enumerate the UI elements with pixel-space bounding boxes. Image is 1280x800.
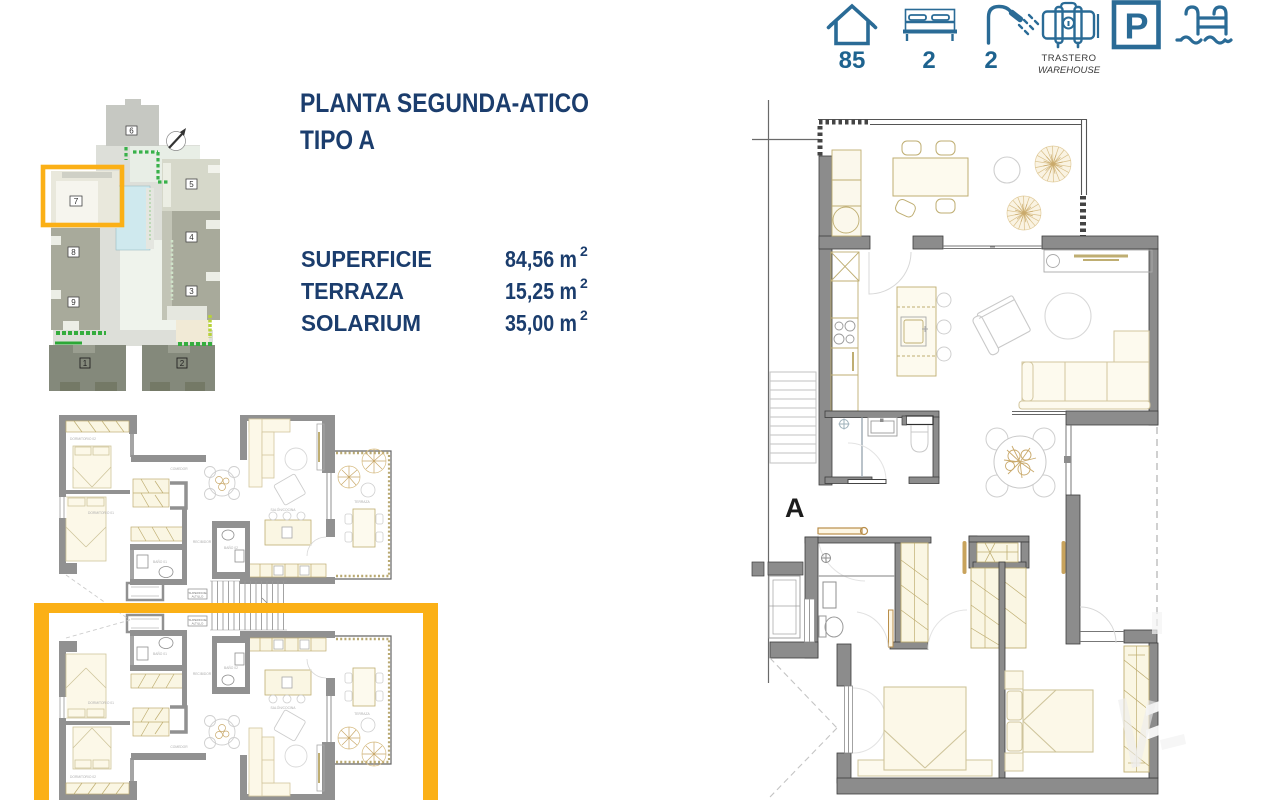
svg-text:2: 2	[580, 307, 588, 323]
svg-text:TRASTERO: TRASTERO	[1042, 53, 1097, 64]
svg-text:2: 2	[922, 47, 935, 74]
svg-text:PLANTA SEGUNDA-ATICO: PLANTA SEGUNDA-ATICO	[300, 88, 589, 118]
svg-text:5: 5	[189, 180, 194, 189]
svg-text:7: 7	[74, 196, 79, 206]
svg-text:DORMITORIO 02: DORMITORIO 02	[70, 775, 96, 779]
svg-text:ALTILLO: ALTILLO	[192, 595, 204, 599]
svg-text:RECIBIDOR: RECIBIDOR	[193, 672, 212, 676]
svg-text:DORMITORIO 01: DORMITORIO 01	[88, 511, 114, 515]
svg-text:BAÑO 02: BAÑO 02	[224, 665, 238, 670]
svg-text:SALÓN/COCINA: SALÓN/COCINA	[271, 507, 297, 512]
svg-text:BAÑO 01: BAÑO 01	[153, 651, 167, 656]
svg-text:P: P	[1124, 6, 1148, 47]
svg-text:2: 2	[580, 275, 588, 291]
svg-text:COMEDOR: COMEDOR	[170, 745, 188, 749]
svg-text:TERRAZA: TERRAZA	[354, 712, 370, 716]
svg-text:WAREHOUSE: WAREHOUSE	[1038, 65, 1101, 76]
svg-text:35,00 m: 35,00 m	[505, 310, 577, 336]
svg-text:BAÑO 02: BAÑO 02	[224, 545, 238, 550]
svg-text:8: 8	[71, 248, 76, 257]
svg-text:TERRAZA: TERRAZA	[354, 500, 370, 504]
svg-text:DORMITORIO 01: DORMITORIO 01	[88, 701, 114, 705]
svg-text:2: 2	[180, 359, 185, 368]
svg-text:RECIBIDOR: RECIBIDOR	[193, 540, 212, 544]
svg-text:84,56 m: 84,56 m	[505, 246, 577, 272]
svg-text:TERRAZA: TERRAZA	[301, 278, 404, 304]
svg-text:2: 2	[984, 47, 997, 74]
svg-text:A: A	[785, 493, 805, 523]
svg-text:TIPO A: TIPO A	[300, 125, 375, 155]
svg-text:85: 85	[839, 47, 866, 74]
svg-text:1: 1	[83, 359, 88, 368]
svg-text:6: 6	[129, 127, 134, 136]
svg-text:4: 4	[189, 233, 194, 242]
svg-text:3: 3	[189, 287, 194, 296]
svg-text:2: 2	[580, 243, 588, 259]
svg-text:SUPERFICIE: SUPERFICIE	[301, 246, 432, 272]
svg-text:9: 9	[71, 298, 76, 307]
svg-text:ALTILLO: ALTILLO	[192, 622, 204, 626]
svg-text:BAÑO 01: BAÑO 01	[153, 559, 167, 564]
svg-text:DORMITORIO 02: DORMITORIO 02	[70, 437, 96, 441]
svg-text:15,25 m: 15,25 m	[505, 278, 577, 304]
svg-text:COMEDOR: COMEDOR	[170, 467, 188, 471]
svg-text:SALÓN/COCINA: SALÓN/COCINA	[271, 705, 297, 710]
svg-text:SOLARIUM: SOLARIUM	[301, 310, 421, 336]
